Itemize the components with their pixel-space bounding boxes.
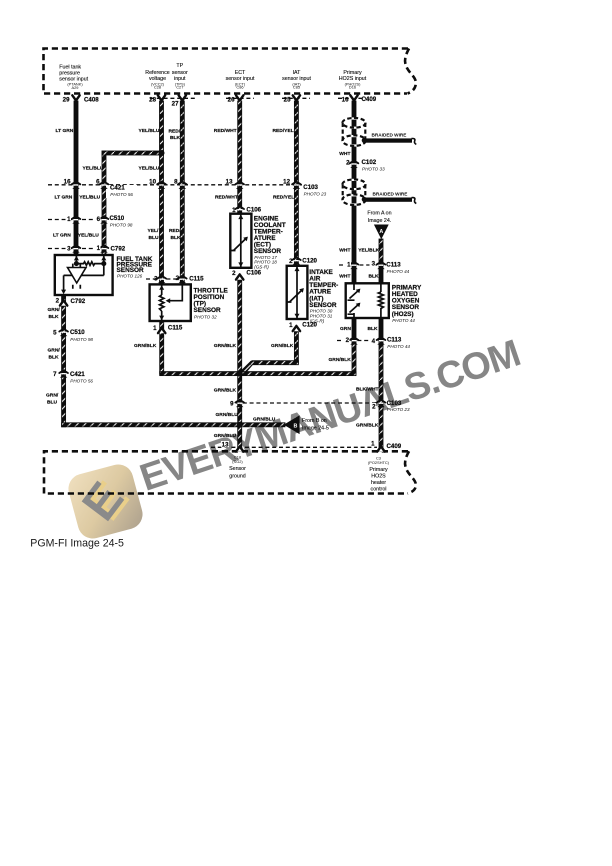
svg-text:BLK: BLK <box>49 355 60 361</box>
svg-text:GRN/BLK: GRN/BLK <box>329 357 352 363</box>
svg-text:(PO2SHTC): (PO2SHTC) <box>368 460 390 465</box>
svg-text:1: 1 <box>232 207 236 214</box>
svg-text:GRN/BLK: GRN/BLK <box>356 423 379 429</box>
svg-text:PHOTO 44: PHOTO 44 <box>387 344 410 349</box>
svg-text:PHOTO 56: PHOTO 56 <box>70 379 93 384</box>
svg-text:GRN/: GRN/ <box>48 307 61 313</box>
svg-text:Primary: Primary <box>343 70 362 76</box>
svg-text:(GS-R): (GS-R) <box>310 318 325 323</box>
svg-text:YEL/: YEL/ <box>148 228 160 234</box>
svg-text:6: 6 <box>97 216 101 223</box>
svg-text:PHOTO 44: PHOTO 44 <box>387 269 410 274</box>
svg-text:Sensor: Sensor <box>229 466 246 472</box>
svg-text:5: 5 <box>53 329 57 336</box>
svg-text:(SG2): (SG2) <box>232 459 243 464</box>
svg-text:3: 3 <box>67 245 71 252</box>
svg-text:Image 24.: Image 24. <box>368 218 392 224</box>
svg-text:C28: C28 <box>154 85 161 90</box>
svg-text:YEL/BLU: YEL/BLU <box>79 195 100 201</box>
svg-text:C115: C115 <box>168 325 183 332</box>
svg-text:GRN/BLK: GRN/BLK <box>214 387 237 393</box>
svg-text:13: 13 <box>226 178 233 185</box>
svg-text:Primary: Primary <box>369 467 388 473</box>
svg-text:28: 28 <box>149 97 156 104</box>
svg-text:BLK: BLK <box>368 326 379 332</box>
svg-text:BLU: BLU <box>149 235 160 241</box>
svg-text:RED/YEL: RED/YEL <box>273 128 294 134</box>
svg-text:Image 24-5: Image 24-5 <box>302 425 329 431</box>
svg-text:RED/YEL: RED/YEL <box>273 194 294 200</box>
svg-text:C409: C409 <box>362 96 377 103</box>
svg-text:2: 2 <box>346 337 350 344</box>
svg-text:C792: C792 <box>71 298 86 305</box>
svg-text:BLU: BLU <box>47 400 58 406</box>
svg-text:16: 16 <box>64 179 71 186</box>
svg-text:2: 2 <box>346 159 350 166</box>
svg-text:3: 3 <box>154 276 158 283</box>
svg-text:1: 1 <box>97 245 101 252</box>
svg-text:(HO2S): (HO2S) <box>392 311 414 318</box>
svg-text:HO2S: HO2S <box>371 473 386 479</box>
svg-text:1: 1 <box>67 216 71 223</box>
svg-text:sensor: sensor <box>172 70 188 76</box>
svg-text:3: 3 <box>372 261 376 268</box>
svg-text:RED/WHT: RED/WHT <box>215 194 238 200</box>
svg-text:YEL/BLU: YEL/BLU <box>139 165 160 171</box>
svg-text:C792: C792 <box>111 246 126 253</box>
svg-text:B: B <box>294 423 298 429</box>
svg-text:PHOTO 44: PHOTO 44 <box>392 318 415 323</box>
svg-text:13: 13 <box>222 441 229 448</box>
svg-text:7: 7 <box>53 371 57 378</box>
svg-text:YEL/BLU: YEL/BLU <box>78 232 99 238</box>
svg-text:C103: C103 <box>303 184 318 191</box>
svg-text:PHOTO 98: PHOTO 98 <box>110 223 133 228</box>
svg-text:From A on: From A on <box>367 211 391 217</box>
svg-text:BLK: BLK <box>49 314 60 320</box>
svg-text:WHT: WHT <box>339 274 350 280</box>
svg-text:heater: heater <box>371 480 386 486</box>
svg-text:2: 2 <box>289 258 293 265</box>
svg-text:PHOTO 33: PHOTO 33 <box>362 167 385 172</box>
svg-text:From B on: From B on <box>302 418 327 424</box>
svg-text:C106: C106 <box>246 207 261 214</box>
svg-text:SENSOR: SENSOR <box>194 307 222 314</box>
svg-text:2: 2 <box>372 404 376 411</box>
svg-text:16: 16 <box>342 96 349 103</box>
svg-text:26: 26 <box>228 97 235 104</box>
svg-text:A29: A29 <box>72 85 79 90</box>
svg-text:C27: C27 <box>176 85 183 90</box>
svg-text:GRN: GRN <box>340 326 351 332</box>
svg-text:LT GRN: LT GRN <box>55 195 73 201</box>
svg-text:IAT: IAT <box>293 70 302 76</box>
svg-text:Reference: Reference <box>145 70 169 76</box>
svg-text:control: control <box>371 486 387 492</box>
svg-text:BLK: BLK <box>369 274 380 280</box>
svg-text:GRN/BLK: GRN/BLK <box>214 343 237 349</box>
svg-text:RED/WHT: RED/WHT <box>214 128 237 134</box>
svg-text:C115: C115 <box>189 275 204 282</box>
svg-text:25: 25 <box>284 97 291 104</box>
svg-text:6: 6 <box>96 179 100 186</box>
svg-text:29: 29 <box>63 97 70 104</box>
svg-text:10: 10 <box>149 179 156 186</box>
svg-text:RED/: RED/ <box>169 228 181 234</box>
svg-text:9: 9 <box>230 400 234 407</box>
svg-text:BLK: BLK <box>170 135 181 141</box>
svg-text:GRN/BLU: GRN/BLU <box>253 417 276 423</box>
svg-text:RED/: RED/ <box>169 128 181 134</box>
svg-text:PHOTO 32: PHOTO 32 <box>194 314 217 319</box>
svg-text:(GS-R): (GS-R) <box>254 264 269 269</box>
svg-text:C409: C409 <box>387 443 402 450</box>
svg-text:C421: C421 <box>110 185 125 192</box>
svg-text:BLK/WHT: BLK/WHT <box>356 387 379 393</box>
svg-text:C113: C113 <box>387 337 402 344</box>
svg-text:pressure: pressure <box>59 70 80 76</box>
svg-text:2: 2 <box>56 298 60 305</box>
svg-text:C102: C102 <box>362 159 377 166</box>
svg-text:1: 1 <box>347 262 351 269</box>
svg-text:C510: C510 <box>70 329 85 336</box>
svg-text:BRAIDED WIRE: BRAIDED WIRE <box>372 133 407 138</box>
svg-text:12: 12 <box>283 178 290 185</box>
svg-text:PHOTO 98: PHOTO 98 <box>70 337 93 342</box>
svg-text:YEL/BLU: YEL/BLU <box>139 128 160 134</box>
svg-text:4: 4 <box>372 338 376 345</box>
svg-text:PHOTO 56: PHOTO 56 <box>110 192 133 197</box>
svg-text:GRN/: GRN/ <box>48 348 61 354</box>
svg-text:PHOTO 23: PHOTO 23 <box>387 407 410 412</box>
svg-text:C103: C103 <box>387 400 402 407</box>
svg-text:LT GRN: LT GRN <box>53 232 71 238</box>
svg-text:YEL/BLU: YEL/BLU <box>83 165 104 171</box>
svg-text:C113: C113 <box>386 261 401 268</box>
svg-text:2: 2 <box>232 270 236 277</box>
svg-text:1: 1 <box>289 322 293 329</box>
svg-text:C120: C120 <box>302 258 317 265</box>
svg-text:C86: C86 <box>236 85 243 90</box>
svg-text:A: A <box>379 229 383 235</box>
svg-text:YEL/BLK: YEL/BLK <box>358 248 379 254</box>
svg-text:D16: D16 <box>349 85 356 90</box>
svg-text:Fuel tank: Fuel tank <box>59 64 81 70</box>
svg-text:WHT: WHT <box>339 248 350 254</box>
svg-text:PHOTO 23: PHOTO 23 <box>304 192 327 197</box>
svg-text:8: 8 <box>174 179 178 186</box>
svg-text:BLK: BLK <box>171 235 182 241</box>
svg-text:GRN/BLK: GRN/BLK <box>134 343 157 349</box>
svg-text:GRN/BLU: GRN/BLU <box>214 433 237 439</box>
svg-text:TP: TP <box>176 63 183 69</box>
svg-text:2: 2 <box>176 275 180 282</box>
svg-text:ECT: ECT <box>235 70 246 76</box>
svg-text:C106: C106 <box>246 270 261 277</box>
svg-text:GRN/BLU: GRN/BLU <box>216 412 239 418</box>
svg-text:C408: C408 <box>84 97 99 104</box>
svg-text:C421: C421 <box>70 371 85 378</box>
svg-text:WHT: WHT <box>339 151 350 157</box>
svg-text:1: 1 <box>153 325 157 332</box>
svg-text:C85: C85 <box>293 85 300 90</box>
svg-text:ground: ground <box>229 474 246 480</box>
svg-text:C510: C510 <box>110 215 125 222</box>
svg-text:GRN/: GRN/ <box>46 393 59 399</box>
svg-text:27: 27 <box>172 100 179 107</box>
svg-text:1: 1 <box>371 440 375 447</box>
svg-text:BRAIDED WIRE: BRAIDED WIRE <box>373 191 408 196</box>
svg-text:GRN/BLK: GRN/BLK <box>271 343 294 349</box>
svg-text:PGM-FI Image 24-5: PGM-FI Image 24-5 <box>30 538 124 550</box>
svg-text:LT GRN: LT GRN <box>56 128 74 134</box>
svg-text:PHOTO 126: PHOTO 126 <box>117 273 143 278</box>
